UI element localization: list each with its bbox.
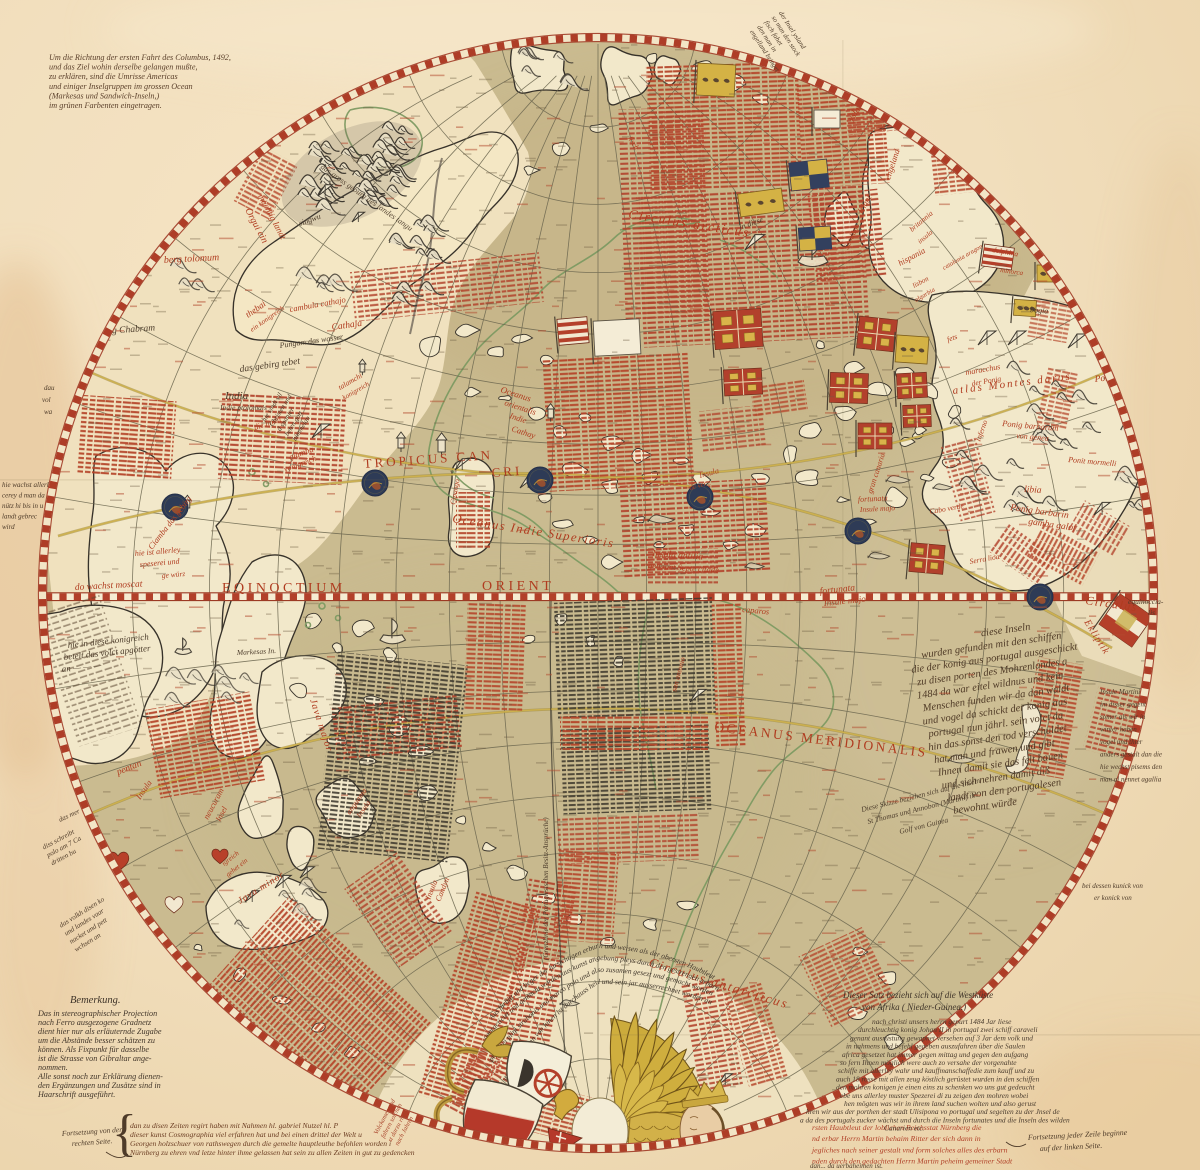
- svg-text:Das in stereographischer Proje: Das in stereographischer Projection: [37, 1009, 157, 1018]
- svg-text:dan zu disen Zeiten regirt hab: dan zu disen Zeiten regirt haben mit Nah…: [130, 1121, 338, 1130]
- svg-text:jegliches nach seiner gestalt: jegliches nach seiner gestalt vnd form s…: [811, 1145, 1008, 1154]
- svg-text:somer als wir in: somer als wir in: [1100, 713, 1146, 721]
- svg-text:Dieser Satz bezieht sich auf d: Dieser Satz bezieht sich auf die Westküs…: [842, 990, 993, 1000]
- svg-text:landt gebrec: landt gebrec: [2, 513, 38, 521]
- svg-text:den Ergänzungen und Zusätze si: den Ergänzungen und Zusätze sind in: [38, 1081, 161, 1090]
- svg-text:Alle sonst noch zur Erklärung: Alle sonst noch zur Erklärung dienen-: [37, 1072, 163, 1081]
- svg-text:a da des portugals zucker wäch: a da des portugals zucker wächst und dur…: [800, 1115, 1070, 1124]
- svg-text:von Afrika ( Nieder-Guinea.): von Afrika ( Nieder-Guinea.): [862, 1002, 966, 1012]
- svg-text:wa: wa: [44, 408, 53, 416]
- svg-text:cerey d man da: cerey d man da: [2, 492, 45, 500]
- svg-text:dieser kunst Cosmographia viel: dieser kunst Cosmographia viel erfahren …: [130, 1130, 362, 1139]
- svg-text:bei dessen kunick von: bei dessen kunick von: [1082, 882, 1143, 890]
- svg-text:nach Ferro ausgezogene Gradnet: nach Ferro ausgezogene Gradnetz: [38, 1018, 152, 1027]
- svg-text:und das Ziel wohin derselbe ge: und das Ziel wohin derselbe gelangen muß…: [49, 63, 198, 72]
- svg-text:hie wechst pisems den: hie wechst pisems den: [1100, 763, 1163, 771]
- svg-text:und einiger Inselgruppen im gr: und einiger Inselgruppen im grossen Ocea…: [49, 82, 193, 91]
- svg-text:um die Abstände besser schätze: um die Abstände besser schätzen zu: [38, 1036, 155, 1045]
- svg-text:nommen.: nommen.: [38, 1063, 68, 1072]
- svg-text:im grünen Farbenten eingetrage: im grünen Farbenten eingetragen.: [49, 101, 162, 110]
- svg-text:dau: dau: [44, 384, 55, 392]
- svg-text:im disser gegent: im disser gegent: [1100, 701, 1147, 709]
- svg-text:Haarschrift ausgeführt.: Haarschrift ausgeführt.: [37, 1090, 115, 1099]
- svg-text:nd erbar Herrn Martin behaim R: nd erbar Herrn Martin behaim Ritter der …: [812, 1134, 981, 1143]
- svg-text:lis: lis: [1148, 608, 1155, 617]
- svg-text:anders gestalt dan die: anders gestalt dan die: [1100, 751, 1162, 759]
- svg-text:nütz hi bis in u: nütz hi bis in u: [2, 502, 44, 510]
- svg-text:dient hier nur als erläuternde: dient hier nur als erläuternde Zugabe: [38, 1027, 162, 1036]
- svg-text:man al nennet agallia: man al nennet agallia: [1100, 776, 1162, 784]
- svg-text:können. Als Fixpunkt für dasse: können. Als Fixpunkt für dasselbe: [38, 1045, 149, 1054]
- svg-text:(Markesas und Sandwich-Inseln,: (Markesas und Sandwich-Inseln,): [49, 91, 160, 100]
- svg-text:Georgen holzschuer von rathswe: Georgen holzschuer von rathswegen durch …: [130, 1139, 391, 1148]
- svg-text:Bemerkung.: Bemerkung.: [70, 995, 120, 1006]
- svg-text:dan... da uerbaheimen ist.: dan... da uerbaheimen ist.: [810, 1162, 883, 1170]
- svg-text:Nürnberg zu ehren vnd letze hi: Nürnberg zu ehren vnd letze hinter ihme …: [129, 1148, 415, 1157]
- svg-text:er konick von: er konick von: [1094, 894, 1132, 902]
- svg-text:Canarien etc.: Canarien etc.: [884, 1124, 924, 1133]
- svg-text:hie wachst allerl: hie wachst allerl: [2, 481, 49, 489]
- svg-text:wird: wird: [2, 523, 15, 531]
- svg-text:Insule Martini: Insule Martini: [1099, 688, 1140, 696]
- svg-text:zu erklären, sind die Umrisse: zu erklären, sind die Umrisse Americas: [48, 72, 178, 81]
- svg-text:vogel und thier: vogel und thier: [1100, 738, 1143, 746]
- svg-text:Um die Richtung der ersten Fah: Um die Richtung der ersten Fahrt des Col…: [49, 53, 231, 62]
- svg-text:equinoccia-: equinoccia-: [1128, 597, 1164, 606]
- svg-text:vol: vol: [42, 396, 51, 404]
- svg-text:winter haben: winter haben: [1100, 726, 1137, 734]
- svg-text:ist die Strasse von Gibraltar: ist die Strasse von Gibraltar ange-: [38, 1054, 152, 1063]
